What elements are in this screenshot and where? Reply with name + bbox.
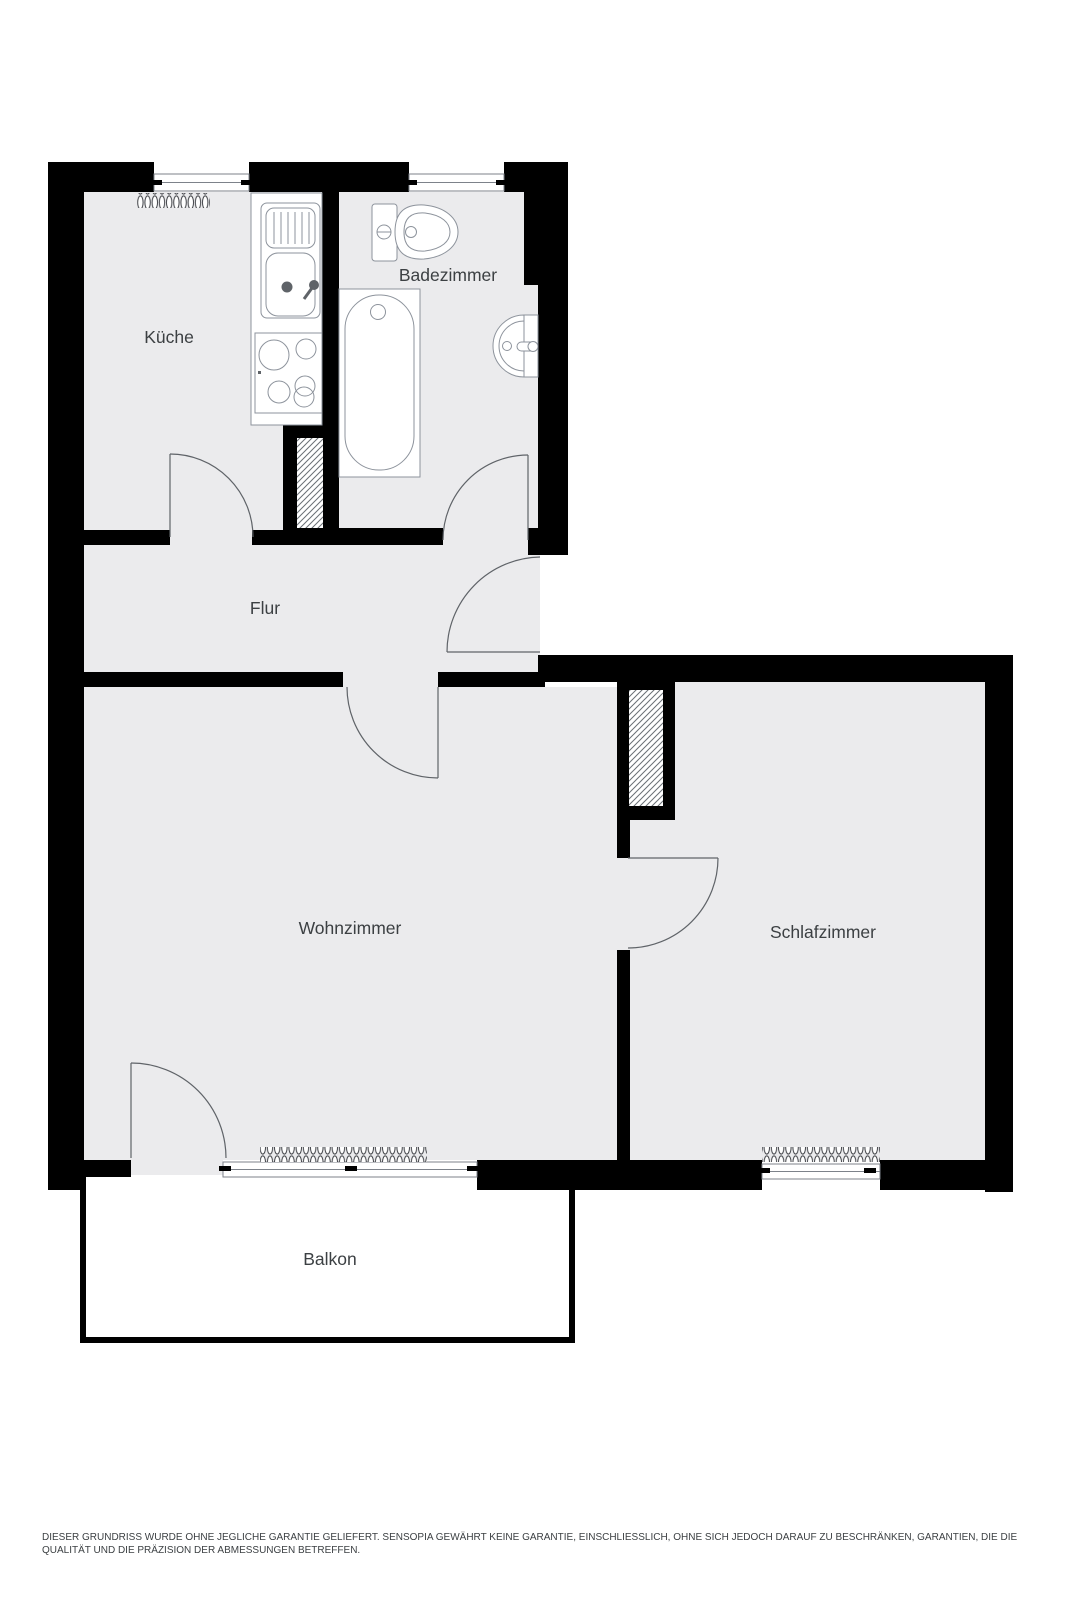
bedroom-chimney-hatch xyxy=(629,690,663,806)
floorplan-page: Küche Badezimmer Flur Wohnzimmer Schlafz… xyxy=(0,0,1067,1600)
bathroom-window-icon xyxy=(405,174,508,191)
kitchen-chimney-hatch xyxy=(297,438,323,528)
bedroom-window-icon xyxy=(758,1164,880,1179)
floorplan-drawing: Küche Badezimmer Flur Wohnzimmer Schlafz… xyxy=(0,0,1067,1600)
bedroom-radiator-icon xyxy=(762,1147,880,1162)
label-flur: Flur xyxy=(250,598,280,618)
label-balkon: Balkon xyxy=(303,1249,357,1269)
kitchen-window-icon xyxy=(150,174,253,191)
label-schlafzimmer: Schlafzimmer xyxy=(770,922,876,942)
label-badezimmer: Badezimmer xyxy=(399,265,497,285)
kitchen-door-gap xyxy=(170,530,252,545)
kitchen-radiator-icon xyxy=(137,193,210,208)
label-kueche: Küche xyxy=(144,327,194,347)
room-flur-floor xyxy=(84,545,540,672)
bath-door-gap xyxy=(443,528,528,545)
disclaimer-text: DIESER GRUNDRISS WURDE OHNE JEGLICHE GAR… xyxy=(42,1531,1042,1557)
kitchen-sink-icon xyxy=(261,203,320,318)
bathtub-icon xyxy=(339,289,420,477)
kitchen-unit xyxy=(251,193,322,425)
disclaimer-line-2: QUALITÄT UND DIE PRÄZISION DER ABMESSUNG… xyxy=(42,1544,1042,1557)
kitchen-stove-icon xyxy=(255,333,322,413)
bedroom-door-gap xyxy=(617,858,630,950)
balcony-door-gap xyxy=(131,1160,223,1175)
disclaimer-line-1: DIESER GRUNDRISS WURDE OHNE JEGLICHE GAR… xyxy=(42,1531,1042,1544)
label-wohnzimmer: Wohnzimmer xyxy=(299,918,402,938)
living-door-gap xyxy=(343,672,438,687)
room-schlafzimmer-floor xyxy=(630,682,985,1160)
livingroom-window-icon xyxy=(219,1162,479,1177)
toilet-icon xyxy=(372,204,458,261)
livingroom-radiator-icon xyxy=(260,1147,427,1162)
